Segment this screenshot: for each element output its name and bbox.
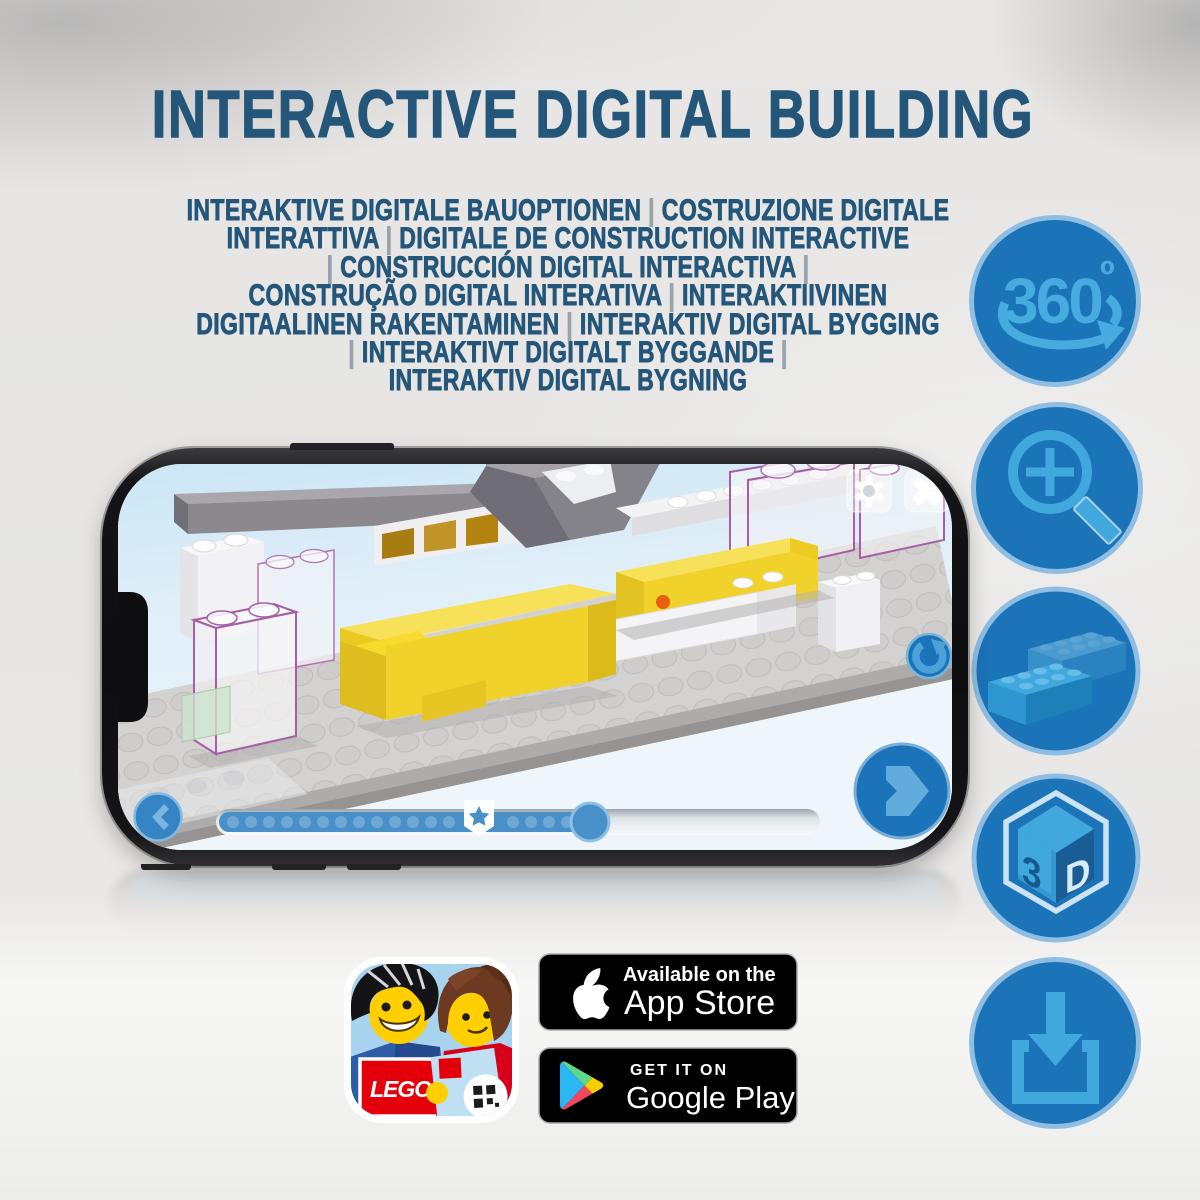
svg-text:360: 360	[1003, 265, 1101, 337]
svg-text:GET IT ON: GET IT ON	[630, 1062, 728, 1079]
svg-text:Google Play: Google Play	[626, 1080, 795, 1115]
svg-text:3: 3	[1022, 847, 1042, 899]
svg-text:LEGO: LEGO	[370, 1076, 432, 1102]
svg-text:º: º	[1100, 254, 1115, 298]
svg-text:Available on the: Available on the	[623, 964, 776, 986]
svg-text:App Store: App Store	[624, 984, 775, 1022]
